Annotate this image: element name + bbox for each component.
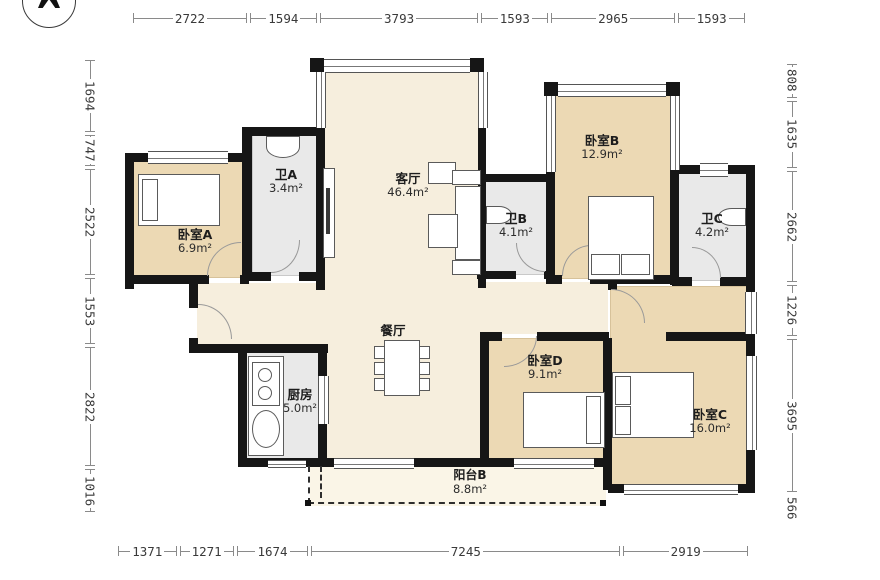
- burner-icon: [258, 368, 272, 382]
- wall: [478, 174, 552, 182]
- dimension-value: 1593: [695, 11, 729, 26]
- wall: [238, 344, 328, 353]
- wall: [247, 272, 271, 281]
- balcony-dashed-line: [308, 466, 310, 504]
- wall: [318, 344, 327, 376]
- balcony-floor: [310, 466, 606, 506]
- wall: [546, 275, 562, 284]
- dimension-segment: 1593: [678, 8, 745, 28]
- window: [478, 72, 488, 128]
- dimension-segment: 1593: [481, 8, 548, 28]
- window: [546, 96, 556, 172]
- dimension-value: 3793: [382, 11, 416, 26]
- dimension-segment: 2662: [782, 171, 802, 282]
- wall: [720, 277, 754, 286]
- balcony-sliding-door: [334, 458, 414, 469]
- window: [670, 96, 680, 170]
- wall-post: [310, 58, 324, 72]
- chair: [419, 362, 430, 375]
- dimension-segment: 2919: [623, 541, 748, 561]
- dimension-segment: 747: [80, 135, 100, 167]
- dimension-value: 2522: [83, 205, 98, 239]
- dimension-segment: 1371: [118, 541, 177, 561]
- wall: [189, 275, 198, 308]
- sofa: [455, 186, 481, 260]
- dimension-segment: 2822: [80, 347, 100, 466]
- coffee-table: [428, 214, 458, 248]
- dimension-value: 1016: [83, 474, 98, 508]
- pillow: [586, 396, 601, 444]
- window: [316, 72, 326, 128]
- chair: [374, 378, 385, 391]
- pillow: [591, 254, 620, 275]
- dimension-segment: 2522: [80, 169, 100, 275]
- dimension-value: 1694: [83, 79, 98, 113]
- wall: [480, 332, 489, 466]
- wall: [242, 127, 252, 280]
- north-arrow-notch: [42, 0, 56, 9]
- dimension-segment: 1694: [80, 60, 100, 132]
- side-table: [452, 170, 481, 185]
- wall: [299, 272, 318, 281]
- chair: [374, 362, 385, 375]
- balcony-dashed-line: [320, 466, 322, 498]
- dimension-segment: 2722: [133, 8, 247, 28]
- dimension-segment: 1553: [80, 278, 100, 344]
- dimension-value: 2662: [785, 210, 800, 244]
- dimension-value: 1594: [266, 11, 300, 26]
- dimension-segment: 2965: [551, 8, 675, 28]
- chair: [374, 346, 385, 359]
- dimension-segment: 7245: [311, 541, 620, 561]
- wall: [189, 344, 247, 353]
- wall: [318, 424, 327, 466]
- window: [624, 484, 738, 495]
- dimension-value: 1226: [785, 293, 800, 327]
- dimension-value: 2965: [596, 11, 630, 26]
- compass-north-icon: [22, 0, 76, 28]
- wall: [670, 168, 679, 285]
- dimension-chain-top: 272215943793159329651593: [133, 8, 745, 28]
- bay-window: [324, 59, 470, 73]
- dimension-segment: 566: [782, 495, 802, 522]
- chair: [419, 378, 430, 391]
- dimension-value: 2722: [173, 11, 207, 26]
- dimension-value: 1593: [498, 11, 532, 26]
- bath-c-sink: [718, 208, 746, 226]
- wall: [537, 332, 609, 341]
- chair: [419, 346, 430, 359]
- kitchen-sink: [252, 410, 280, 448]
- wall: [247, 127, 324, 136]
- wall: [125, 153, 134, 289]
- tv-icon: [326, 188, 330, 234]
- dimension-segment: 3793: [320, 8, 479, 28]
- dimension-segment: 1226: [782, 285, 802, 336]
- dimension-chain-bottom: 13711271167472452919: [118, 541, 748, 561]
- wall: [546, 170, 555, 282]
- bath-b-sink: [486, 206, 512, 224]
- floor-plan: 卧室A 6.9m² 卫A 3.4m² 客厅 46.4m² 卫B 4.1m² 卧室…: [0, 0, 880, 580]
- corridor-floor: [482, 282, 608, 334]
- wall: [672, 277, 692, 286]
- bath-a-sink: [266, 136, 300, 158]
- dimension-segment: 808: [782, 64, 802, 98]
- wall-post: [666, 82, 680, 96]
- sliding-door: [268, 460, 306, 468]
- dimension-segment: 1674: [237, 541, 308, 561]
- wall: [238, 344, 247, 466]
- window: [746, 356, 757, 450]
- balcony-corner-dot: [305, 500, 311, 506]
- window: [700, 163, 728, 177]
- pillow: [615, 376, 631, 405]
- burner-icon: [258, 386, 272, 400]
- dimension-segment: 1594: [250, 8, 317, 28]
- balcony-dashed-line: [308, 502, 606, 504]
- dimension-segment: 1016: [80, 469, 100, 512]
- dimension-value: 566: [785, 495, 800, 522]
- wall-post: [470, 58, 484, 72]
- dimension-value: 2919: [669, 544, 703, 559]
- dimension-chain-right: 8081635266212263695566: [782, 64, 802, 522]
- dimension-value: 2822: [83, 390, 98, 424]
- dimension-value: 1271: [190, 544, 224, 559]
- dimension-value: 747: [83, 137, 98, 164]
- dimension-value: 1674: [255, 544, 289, 559]
- side-table: [452, 260, 481, 275]
- balcony-sliding-door: [514, 458, 594, 469]
- wall-post: [544, 82, 558, 96]
- kitchen-pass-window: [318, 376, 329, 424]
- dimension-value: 1635: [785, 117, 800, 151]
- entry-hall-floor: [197, 283, 482, 346]
- wall: [477, 271, 516, 279]
- dimension-segment: 1271: [180, 541, 234, 561]
- pillow: [621, 254, 650, 275]
- dimension-value: 1371: [130, 544, 164, 559]
- dimension-chain-left: 16947472522155328221016: [80, 60, 100, 512]
- dimension-value: 7245: [449, 544, 483, 559]
- window: [148, 151, 228, 164]
- balcony-corner-dot: [600, 500, 606, 506]
- dimension-value: 3695: [785, 399, 800, 433]
- dimension-segment: 1635: [782, 101, 802, 169]
- pillow: [142, 179, 158, 221]
- dining-table: [384, 340, 420, 396]
- bay-window: [558, 84, 666, 97]
- dimension-segment: 3695: [782, 339, 802, 492]
- wall: [666, 332, 748, 341]
- pillow: [615, 406, 631, 435]
- dimension-value: 808: [785, 67, 800, 94]
- dimension-value: 1553: [83, 294, 98, 328]
- window: [745, 292, 757, 334]
